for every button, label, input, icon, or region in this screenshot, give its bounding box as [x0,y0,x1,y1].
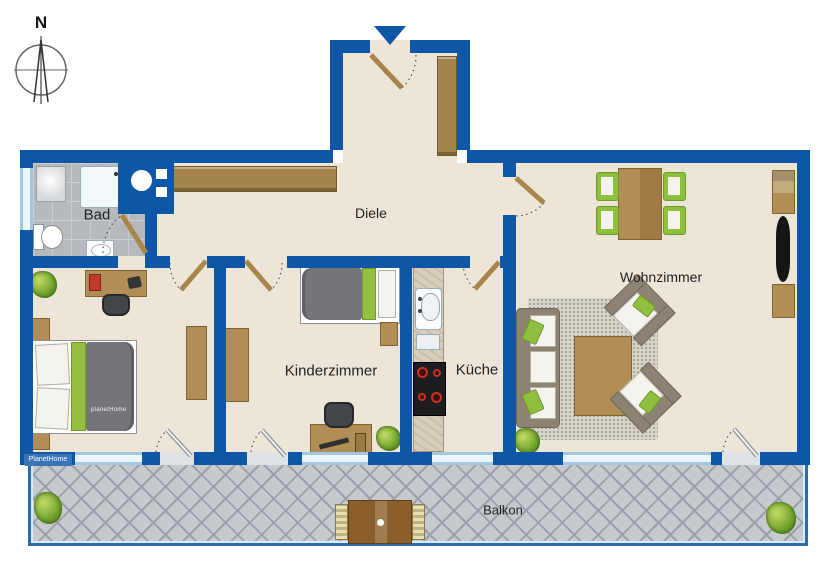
burner [417,367,428,378]
pillow [35,387,70,430]
plant [34,492,62,524]
nightstand [32,318,50,342]
wall [20,256,118,268]
planethome-watermark: PlanetHome [24,454,72,466]
dining-chair [663,172,686,201]
shelf-unit [772,170,795,214]
desk-printer [89,274,101,291]
plant [514,428,540,454]
bed-green-runner [362,268,376,320]
sofa-cushion [530,351,556,383]
room-label-kinderzimmer: Kinderzimmer [285,363,378,380]
plant [376,426,401,451]
pillow [35,343,70,386]
wall [797,150,810,462]
wall [368,452,432,465]
wall [142,452,160,465]
stove [413,362,446,416]
wall [410,40,470,53]
window-wohnzimmer [563,452,711,465]
wall [760,452,810,465]
wall [288,452,302,465]
room-label-bad: Bad [84,207,111,224]
compass-circle [16,45,66,95]
vent-circle [131,170,152,191]
bed-green-runner [71,342,86,431]
balcony-door-sill [722,452,760,465]
bed-blanket [86,342,134,431]
compass-label: N [35,13,47,32]
bed-blanket [302,268,362,320]
bedroom-desk-chair [102,294,130,316]
room-label-wohnzimmer: Wohnzimmer [620,269,702,285]
table-center-dot [377,519,384,526]
wall [20,150,333,163]
window-bedroom [75,452,142,465]
burner [418,393,426,401]
wall [493,452,563,465]
plant [766,502,796,534]
balcony-chair [412,504,425,540]
wall [467,150,810,163]
window-kinderzimmer [302,452,368,465]
sink-faucet [418,297,422,301]
single-bed [300,266,400,324]
sofa [516,308,560,428]
wall [400,268,412,452]
plant [30,271,57,298]
vent-square [156,187,167,197]
nightstand [380,322,398,346]
room-label-diele: Diele [355,205,387,221]
kinder-desk-chair [324,402,354,428]
wall [287,256,470,268]
sink-basin [421,293,440,321]
window-kueche [432,452,493,465]
balcony-table [348,500,412,544]
wall [711,452,722,465]
wall [330,40,343,150]
double-bed: planetHome [32,340,137,434]
wall [145,214,157,256]
bed-watermark: planetHome [91,407,126,413]
dining-chair [663,206,686,235]
bedroom-wardrobe [186,326,207,400]
compass-needle-right [41,40,48,102]
kitchen-sink [415,288,442,330]
sideboard [772,284,795,318]
desk-keyboard [319,437,349,449]
dining-table [618,168,662,240]
dining-chair [596,172,619,201]
wall [457,40,470,150]
wall [194,452,247,465]
vestibule-wardrobe [437,56,457,156]
balcony-chair [335,504,348,540]
wall [145,256,170,268]
burner [431,392,442,403]
kinder-wardrobe [222,328,249,402]
balcony-door-sill [247,452,288,465]
burner [433,369,441,377]
window-bath [20,168,33,230]
washing-machine [36,166,66,202]
wall [214,268,226,452]
pillow [378,270,396,318]
compass-rose: N [12,4,82,114]
room-label-balkon: Balkon [483,503,523,518]
compass-needle-left [34,40,41,102]
dining-chair [596,206,619,235]
hall-wardrobe [173,166,337,192]
balcony-door-sill [160,452,194,465]
desk-drawers [355,433,366,453]
tv [776,216,790,282]
wall [503,163,516,177]
vent-square [156,169,167,179]
sink-faucet [418,309,422,313]
toilet-bowl [41,225,63,249]
room-label-kueche: Küche [456,362,499,379]
floor-plan: N [0,0,834,568]
kitchen-board [416,334,440,350]
wall [330,40,370,53]
wall [503,215,516,452]
wall [207,256,245,268]
